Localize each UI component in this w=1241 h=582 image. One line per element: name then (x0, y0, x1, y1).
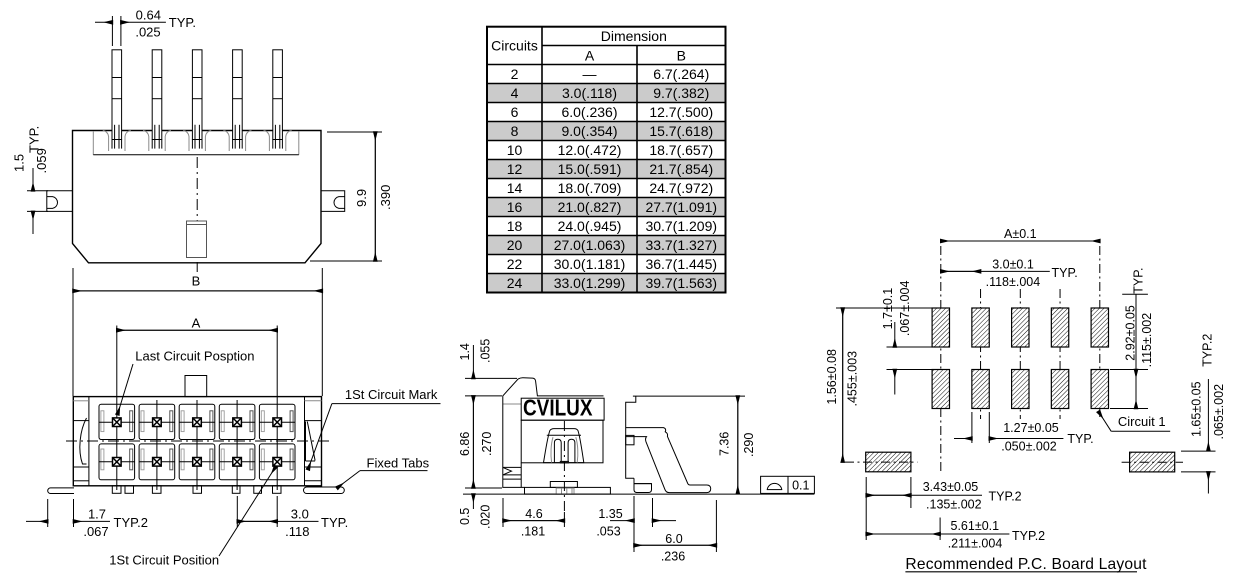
svg-text:TYP.2: TYP.2 (1012, 529, 1045, 543)
svg-text:3.0±0.1: 3.0±0.1 (992, 257, 1034, 271)
svg-text:24.7(.972): 24.7(.972) (649, 180, 713, 196)
svg-text:.118: .118 (285, 524, 309, 539)
svg-text:1.27±0.05: 1.27±0.05 (1003, 421, 1059, 435)
svg-text:2: 2 (511, 66, 519, 82)
svg-text:Recommended P.C. Board Layout: Recommended P.C. Board Layout (905, 556, 1147, 573)
svg-text:6.7(.264): 6.7(.264) (653, 66, 709, 82)
svg-text:Fixed Tabs: Fixed Tabs (367, 456, 430, 471)
svg-text:.115±.002: .115±.002 (1140, 313, 1154, 368)
svg-text:18.0(.709): 18.0(.709) (558, 180, 622, 196)
svg-text:.118±.004: .118±.004 (986, 275, 1041, 289)
svg-text:6.0(.236): 6.0(.236) (561, 104, 617, 120)
svg-text:.025: .025 (135, 25, 160, 40)
svg-text:12: 12 (507, 161, 523, 177)
svg-text:0.64: 0.64 (136, 7, 161, 22)
svg-text:21.7(.854): 21.7(.854) (649, 161, 713, 177)
svg-text:A±0.1: A±0.1 (1004, 227, 1037, 241)
svg-text:.390: .390 (378, 185, 393, 210)
svg-text:Circuit 1: Circuit 1 (1118, 414, 1166, 429)
svg-text:33.7(1.327): 33.7(1.327) (645, 237, 717, 253)
svg-text:9.9: 9.9 (354, 189, 369, 207)
svg-text:.067: .067 (83, 524, 108, 539)
svg-text:9.7(.382): 9.7(.382) (653, 85, 709, 101)
svg-text:1.4: 1.4 (458, 343, 472, 360)
svg-text:.270: .270 (480, 432, 494, 456)
svg-text:3.0: 3.0 (291, 506, 309, 521)
svg-text:24: 24 (507, 275, 523, 291)
svg-text:12.0(.472): 12.0(.472) (558, 142, 622, 158)
svg-text:10: 10 (507, 142, 523, 158)
svg-text:.055: .055 (479, 339, 493, 363)
svg-text:24.0(.945): 24.0(.945) (558, 218, 622, 234)
svg-text:1.7: 1.7 (88, 506, 106, 521)
svg-text:.290: .290 (742, 433, 756, 457)
svg-text:16: 16 (507, 199, 523, 215)
svg-text:TYP.2: TYP.2 (1201, 334, 1215, 367)
svg-text:TYP.: TYP. (1052, 266, 1078, 280)
svg-text:.181: .181 (521, 525, 545, 539)
svg-text:TYP.2: TYP.2 (114, 515, 148, 530)
svg-text:CVILUX: CVILUX (523, 395, 593, 421)
svg-text:1.56±0.08: 1.56±0.08 (825, 349, 839, 405)
svg-text:A: A (192, 315, 201, 330)
svg-text:15.0(.591): 15.0(.591) (558, 161, 622, 177)
svg-text:27.7(1.091): 27.7(1.091) (645, 199, 717, 215)
svg-text:30.7(1.209): 30.7(1.209) (645, 218, 717, 234)
svg-text:36.7(1.445): 36.7(1.445) (645, 256, 717, 272)
svg-text:18: 18 (507, 218, 523, 234)
svg-text:21.0(.827): 21.0(.827) (558, 199, 622, 215)
svg-text:2.92±0.05: 2.92±0.05 (1124, 305, 1138, 361)
svg-text:6.86: 6.86 (458, 432, 472, 456)
svg-text:33.0(1.299): 33.0(1.299) (554, 275, 626, 291)
svg-text:18.7(.657): 18.7(.657) (649, 142, 713, 158)
svg-text:—: — (583, 66, 597, 82)
svg-text:B: B (677, 47, 686, 63)
svg-text:22: 22 (507, 256, 523, 272)
svg-text:1St Circuit Position: 1St Circuit Position (109, 553, 219, 568)
svg-text:6.0: 6.0 (665, 532, 682, 546)
svg-text:A: A (585, 47, 595, 63)
svg-text:20: 20 (507, 237, 523, 253)
svg-text:.455±.003: .455±.003 (846, 351, 860, 407)
svg-text:7.36: 7.36 (718, 432, 732, 456)
svg-text:TYP.: TYP. (1132, 268, 1146, 294)
svg-text:.065±.002: .065±.002 (1212, 384, 1226, 440)
svg-text:B: B (192, 274, 201, 289)
svg-text:.211±.004: .211±.004 (948, 537, 1003, 551)
svg-text:1St Circuit Mark: 1St Circuit Mark (345, 387, 438, 402)
svg-text:4.6: 4.6 (525, 507, 542, 521)
svg-text:6: 6 (511, 104, 519, 120)
svg-text:3.43±0.05: 3.43±0.05 (923, 480, 979, 494)
svg-text:4: 4 (511, 85, 519, 101)
svg-text:0.1: 0.1 (792, 478, 809, 492)
svg-text:.053: .053 (596, 525, 620, 539)
svg-text:TYP.: TYP. (169, 15, 196, 30)
svg-text:Circuits: Circuits (491, 38, 538, 54)
svg-text:.059: .059 (34, 148, 49, 173)
svg-text:TYP.: TYP. (1067, 432, 1093, 446)
svg-text:39.7(1.563): 39.7(1.563) (645, 275, 717, 291)
svg-text:8: 8 (511, 123, 519, 139)
svg-text:Dimension: Dimension (601, 28, 667, 44)
svg-text:14: 14 (507, 180, 523, 196)
svg-text:.135±.002: .135±.002 (926, 498, 982, 512)
svg-text:Last Circuit Posption: Last Circuit Posption (135, 349, 254, 364)
svg-text:1.7±0.1: 1.7±0.1 (881, 288, 895, 330)
svg-text:.020: .020 (479, 505, 493, 529)
svg-text:0.5: 0.5 (458, 508, 472, 525)
svg-text:1.35: 1.35 (598, 507, 622, 521)
svg-text:12.7(.500): 12.7(.500) (649, 104, 713, 120)
svg-text:TYP.2: TYP.2 (989, 490, 1022, 504)
svg-text:30.0(1.181): 30.0(1.181) (554, 256, 626, 272)
svg-text:1.65±0.05: 1.65±0.05 (1189, 381, 1203, 437)
svg-text:9.0(.354): 9.0(.354) (561, 123, 617, 139)
svg-text:15.7(.618): 15.7(.618) (649, 123, 713, 139)
svg-text:5.61±0.1: 5.61±0.1 (951, 519, 1000, 533)
svg-text:1.5: 1.5 (12, 154, 27, 172)
svg-text:.050±.002: .050±.002 (1001, 440, 1057, 454)
svg-text:3.0(.118): 3.0(.118) (562, 85, 617, 101)
svg-text:TYP.: TYP. (321, 515, 348, 530)
svg-text:27.0(1.063): 27.0(1.063) (554, 237, 626, 253)
svg-text:.236: .236 (661, 550, 685, 564)
